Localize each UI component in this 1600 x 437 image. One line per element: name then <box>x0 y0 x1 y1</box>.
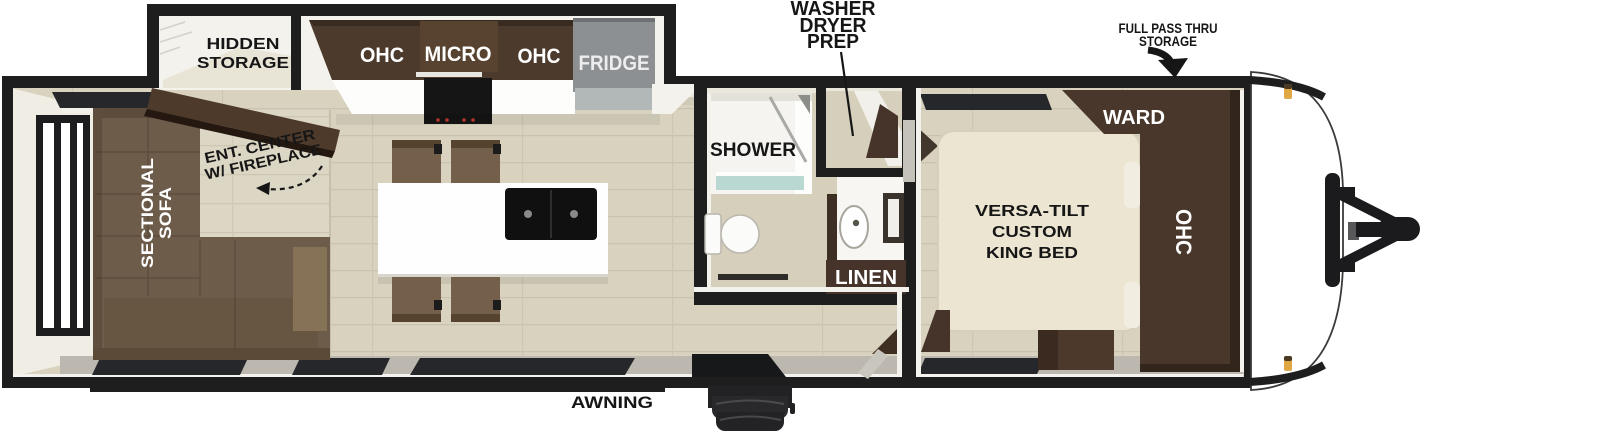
svg-text:OHC: OHC <box>360 44 404 67</box>
svg-text:LINEN: LINEN <box>835 267 897 289</box>
svg-text:KING BED: KING BED <box>986 245 1078 262</box>
svg-text:AWNING: AWNING <box>571 393 653 412</box>
svg-text:HIDDEN: HIDDEN <box>207 36 280 53</box>
svg-text:STORAGE: STORAGE <box>1139 33 1197 49</box>
svg-text:VERSA-TILT: VERSA-TILT <box>975 203 1089 220</box>
svg-text:STORAGE: STORAGE <box>197 55 289 72</box>
svg-text:SECTIONAL: SECTIONAL <box>138 158 157 268</box>
svg-text:MICRO: MICRO <box>425 43 492 66</box>
svg-text:PREP: PREP <box>807 31 859 53</box>
svg-text:WARD: WARD <box>1103 107 1165 129</box>
svg-text:OHC: OHC <box>1171 209 1196 255</box>
svg-text:OHC: OHC <box>518 45 561 68</box>
svg-text:SOFA: SOFA <box>156 187 175 239</box>
svg-text:CUSTOM: CUSTOM <box>992 224 1072 241</box>
svg-text:FRIDGE: FRIDGE <box>579 52 650 75</box>
svg-text:SHOWER: SHOWER <box>710 140 796 161</box>
